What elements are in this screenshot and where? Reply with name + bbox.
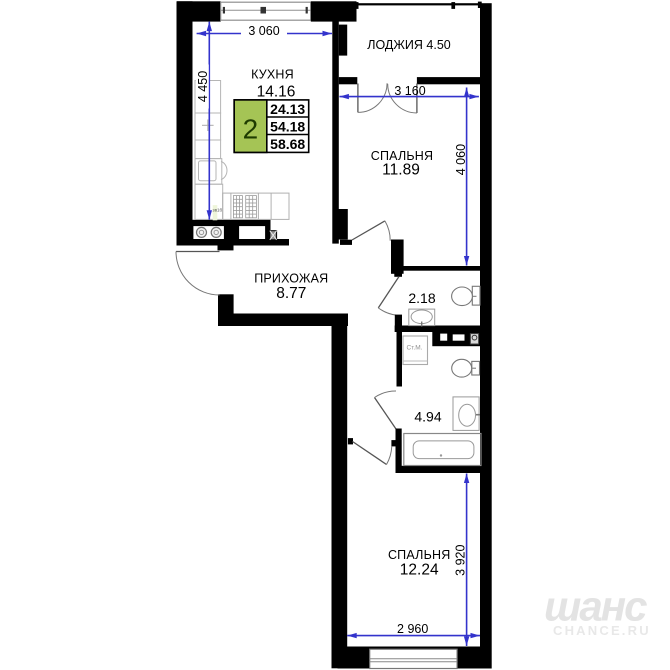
svg-text:КУХНЯ: КУХНЯ (251, 67, 294, 81)
svg-text:СПАЛЬНЯ: СПАЛЬНЯ (388, 548, 450, 562)
svg-text:14.16: 14.16 (257, 84, 296, 101)
svg-text:2.18: 2.18 (408, 290, 435, 306)
svg-text:8.77: 8.77 (276, 285, 306, 302)
svg-text:11.89: 11.89 (382, 161, 420, 178)
svg-text:58.68: 58.68 (270, 136, 305, 152)
svg-text:4 060: 4 060 (454, 144, 468, 175)
svg-text:3 920: 3 920 (454, 545, 468, 576)
svg-text:4 450: 4 450 (196, 71, 210, 102)
svg-text:2: 2 (243, 114, 259, 145)
svg-text:54.18: 54.18 (270, 119, 305, 135)
svg-text:3 060: 3 060 (248, 24, 279, 38)
svg-text:зв1б: зв1б (213, 208, 223, 213)
svg-text:3 160: 3 160 (394, 84, 425, 98)
svg-text:2 960: 2 960 (397, 622, 428, 636)
svg-text:4.94: 4.94 (414, 409, 441, 425)
svg-text:12.24: 12.24 (400, 562, 439, 579)
svg-text:ЛОДЖИЯ 4.50: ЛОДЖИЯ 4.50 (367, 38, 451, 52)
svg-text:CHANCE.RU: CHANCE.RU (553, 623, 651, 638)
svg-text:24.13: 24.13 (270, 101, 305, 117)
svg-text:ПРИХОЖАЯ: ПРИХОЖАЯ (254, 272, 328, 286)
svg-text:Ст.М.: Ст.М. (407, 345, 423, 352)
